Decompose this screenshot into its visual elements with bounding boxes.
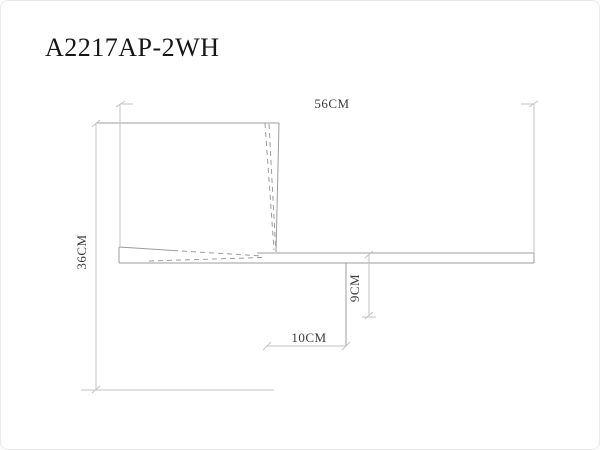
offset-dimension-label: 10CM [291,330,326,345]
horizontal-shade-hidden-edge-top [173,251,263,257]
fixture-outline [96,123,534,346]
dimension-drawing-page: A2217AP-2WH [0,0,600,450]
height-dimension-label: 36CM [74,234,89,269]
width-dimension: 56CM [116,96,538,253]
offset-dimension: 10CM [263,330,350,350]
depth-dimension-label: 9CM [347,274,362,302]
model-number-title: A2217AP-2WH [45,33,220,62]
horizontal-shade-hidden-edge-bottom [149,258,263,262]
vertical-shade-hidden-edge-inner [269,124,276,246]
lamp-dimension-drawing: A2217AP-2WH [1,1,600,450]
height-dimension: 36CM [74,120,274,393]
vertical-shade-right-edge [276,123,279,252]
horizontal-shade-top-edge [119,247,173,251]
depth-dimension: 9CM [347,251,376,319]
width-dimension-label: 56CM [314,96,349,111]
